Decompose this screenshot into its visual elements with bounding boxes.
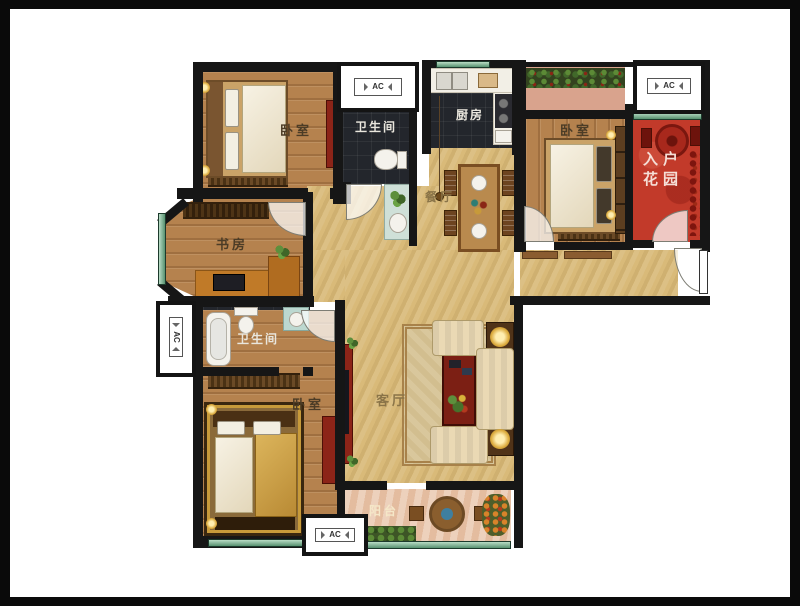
cutting-board xyxy=(478,73,498,88)
photo-frame-left xyxy=(0,0,10,606)
wall-segment xyxy=(193,62,347,72)
table-bouquet xyxy=(444,390,472,418)
room-label-living: 客厅 xyxy=(366,390,418,409)
door-arc-entry xyxy=(674,248,702,292)
window xyxy=(436,61,490,68)
garden-pot xyxy=(641,128,652,148)
photo-frame-right xyxy=(790,0,800,606)
flower-bed-top xyxy=(526,66,625,112)
wall-segment xyxy=(554,242,633,250)
room-label-kitchen: 厨房 xyxy=(442,106,498,123)
nightstand-lamp xyxy=(206,518,217,529)
ac-label: AC xyxy=(172,331,180,343)
hall-bench xyxy=(564,251,612,259)
flower-pot xyxy=(482,494,510,536)
wall-segment xyxy=(193,62,203,202)
table-centerpiece xyxy=(468,197,490,217)
rug xyxy=(183,202,269,219)
toilet xyxy=(374,149,398,170)
dining-table xyxy=(458,164,500,252)
wall-segment xyxy=(625,104,633,250)
plate xyxy=(471,175,487,191)
pillow xyxy=(217,421,245,435)
wall-segment xyxy=(303,367,313,376)
wall-segment xyxy=(628,240,654,248)
laptop xyxy=(213,274,245,291)
wall-segment xyxy=(520,242,526,250)
room-label-entry-garden: 入户 花园 xyxy=(634,150,692,191)
plate xyxy=(471,223,487,239)
ac-unit-icon: AC xyxy=(169,317,183,357)
pillow xyxy=(253,421,281,435)
toilet-tank xyxy=(397,151,407,169)
wall-segment xyxy=(516,110,633,119)
kitchen-sink-small xyxy=(495,130,512,143)
wall-segment xyxy=(690,240,706,248)
sofa-bottom xyxy=(430,426,488,464)
ac-label: AC xyxy=(372,83,384,91)
wall-segment xyxy=(516,62,633,67)
ac-unit-icon: AC xyxy=(647,78,691,94)
entry-garden-line2: 花园 xyxy=(634,170,692,190)
wall-segment xyxy=(197,367,279,376)
wall-segment xyxy=(510,296,710,305)
window xyxy=(345,541,511,549)
room-label-study: 书房 xyxy=(202,234,262,253)
ac-unit-icon: AC xyxy=(354,78,402,96)
footboard xyxy=(215,517,295,530)
cabinet xyxy=(268,256,300,298)
room-label-bedroom-bottom-left: 卧室 xyxy=(280,394,336,413)
window-bay xyxy=(158,213,166,285)
sofa-right xyxy=(476,348,514,430)
plant xyxy=(346,454,359,467)
blanket xyxy=(255,433,297,517)
wall-segment xyxy=(193,375,203,541)
floor-plan: 卧室 卫生间 厨房 卧室 入户 花园 餐厅 xyxy=(0,0,800,606)
wardrobe-red xyxy=(322,416,336,484)
sheet xyxy=(215,437,253,513)
desk-plant-icon xyxy=(274,244,291,259)
nightstand-lamp xyxy=(206,404,217,415)
toilet-tank xyxy=(234,307,258,316)
room-label-balcony: 阳台 xyxy=(360,502,408,519)
room-label-bedroom-top-right: 卧室 xyxy=(548,120,604,139)
tv-remote xyxy=(449,360,461,368)
room-label-bedroom-top-left: 卧室 xyxy=(266,120,326,139)
plant-row-icon xyxy=(526,68,625,88)
dining-chair xyxy=(444,210,457,236)
pendant-cord xyxy=(439,96,440,192)
wall-segment xyxy=(422,60,431,154)
wall-segment xyxy=(426,481,514,490)
wall-segment xyxy=(177,188,308,199)
bath-plant-icon xyxy=(389,189,407,207)
duvet xyxy=(550,144,594,228)
ornate-bed xyxy=(204,402,304,536)
balcony-table xyxy=(429,496,465,532)
photo-frame-top xyxy=(0,0,800,9)
ac-label: AC xyxy=(663,82,675,90)
ac-unit-icon: AC xyxy=(315,528,355,542)
headboard xyxy=(208,82,223,176)
nightstand-lamp xyxy=(606,210,616,220)
pillow xyxy=(225,89,239,127)
ac-label: AC xyxy=(329,531,341,539)
wall-segment xyxy=(335,300,345,490)
pillow xyxy=(596,146,612,182)
entry-garden-line1: 入户 xyxy=(634,150,692,170)
book xyxy=(462,368,472,375)
entry-door-leaf xyxy=(699,250,708,294)
nightstand-lamp xyxy=(606,130,616,140)
bath-sink xyxy=(389,213,407,233)
room-label-dining: 餐厅 xyxy=(418,188,462,205)
table-center xyxy=(441,508,453,520)
pillow xyxy=(225,132,239,170)
wall-segment xyxy=(514,296,523,548)
room-label-bath-left: 卫生间 xyxy=(220,330,296,347)
side-table-lamp xyxy=(490,429,510,449)
side-table-lamp xyxy=(490,327,510,347)
shoe-cabinet xyxy=(522,251,558,259)
room-label-bath-top: 卫生间 xyxy=(340,118,412,135)
plant xyxy=(346,336,359,349)
stool xyxy=(409,506,424,521)
hall-west-floor xyxy=(313,250,345,302)
kitchen-sink xyxy=(436,72,468,90)
photo-frame-bottom xyxy=(0,597,800,606)
shower xyxy=(384,184,410,240)
